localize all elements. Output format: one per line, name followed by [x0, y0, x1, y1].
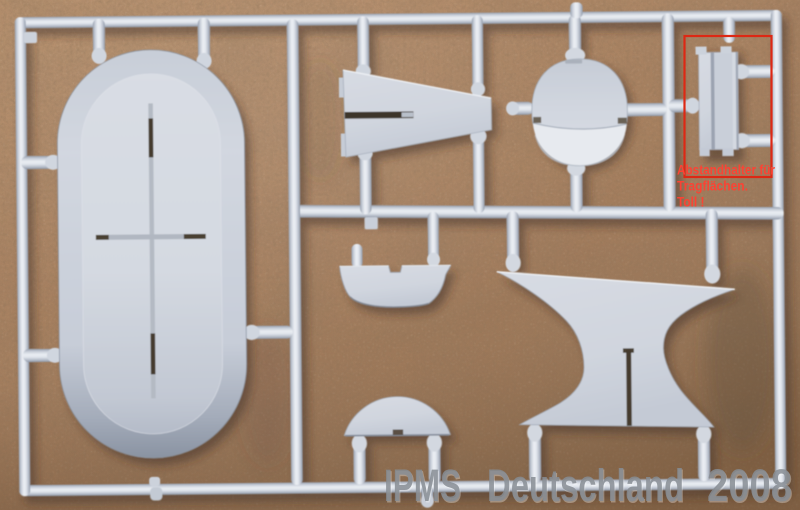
svg-text:Toll !: Toll !	[677, 194, 705, 210]
svg-text:Abstandhalter für: Abstandhalter für	[677, 162, 775, 178]
svg-text:Tragflächen.: Tragflächen.	[677, 178, 748, 194]
svg-text:IPMS: IPMS	[384, 460, 461, 510]
svg-text:Deutschland: Deutschland	[487, 460, 684, 510]
svg-text:2008: 2008	[707, 460, 792, 510]
